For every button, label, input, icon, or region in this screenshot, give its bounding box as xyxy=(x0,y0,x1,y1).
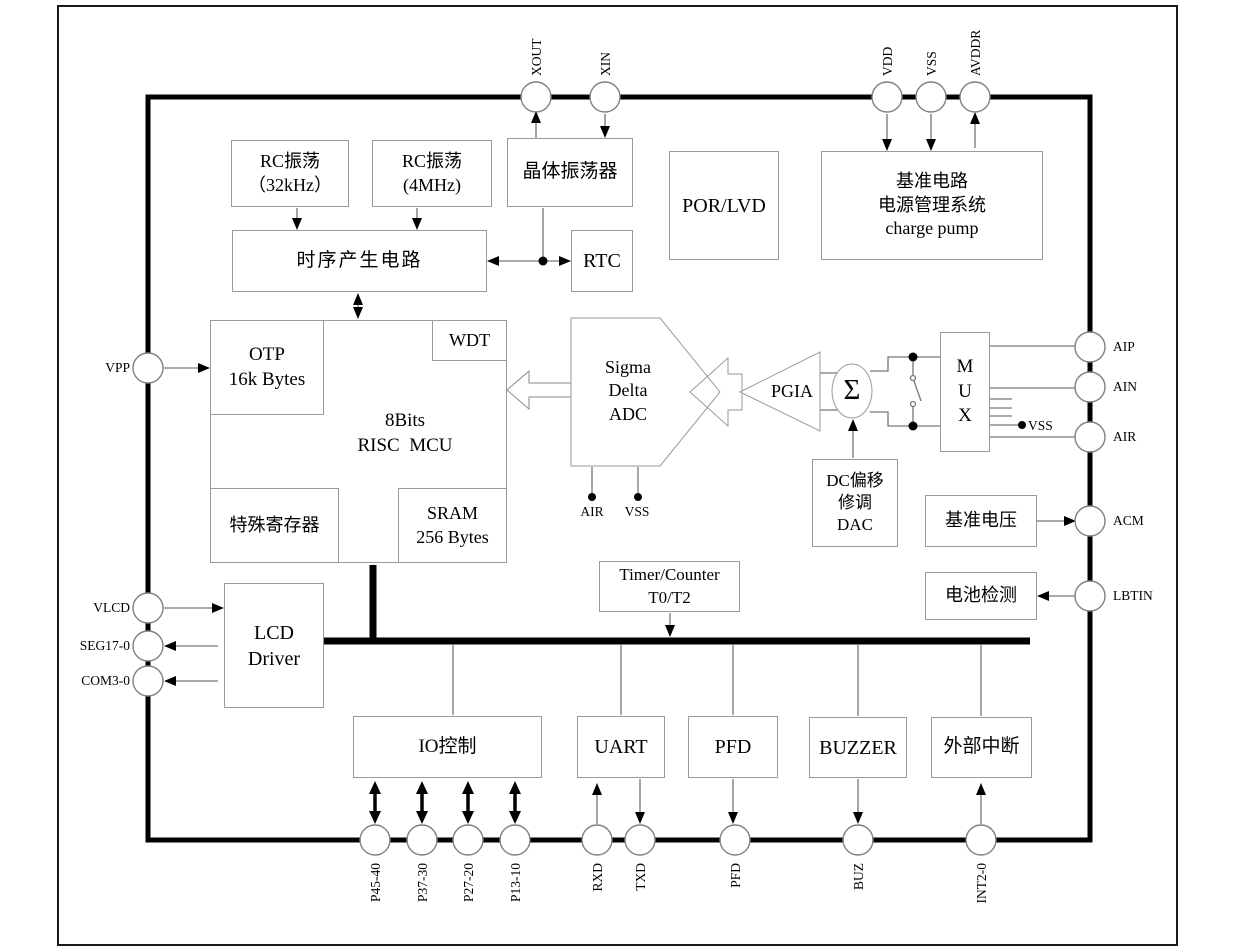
pin-label-p37-30: P37-30 xyxy=(415,863,430,902)
arrowhead-rc32 xyxy=(292,218,302,230)
block-uart: UART xyxy=(577,716,665,778)
switch-contact-bottom xyxy=(911,402,916,407)
pin-label-ain: AIN xyxy=(1113,379,1137,394)
block-label: Timer/Counter xyxy=(619,564,719,586)
block-label: charge pump xyxy=(885,217,978,240)
block-label: 特殊寄存器 xyxy=(230,514,320,537)
arrowhead-seg xyxy=(164,641,176,651)
arrowhead-pfd-down xyxy=(728,812,738,824)
block-label: M xyxy=(957,355,974,380)
block-buzzer: BUZZER xyxy=(809,717,907,778)
block-timer-counter: Timer/Counter T0/T2 xyxy=(599,561,740,612)
block-label: ADC xyxy=(609,403,647,426)
wire-sum-switch-bot xyxy=(870,412,910,426)
pin-ain xyxy=(1075,372,1105,402)
pin-label-p45-40: P45-40 xyxy=(368,863,383,902)
block-pfd: PFD xyxy=(688,716,778,778)
io-port-arrows xyxy=(375,789,515,816)
pin-label-xout: XOUT xyxy=(529,38,544,76)
arrowhead-rc4 xyxy=(412,218,422,230)
block-label: 基准电压 xyxy=(945,509,1017,532)
arrowhead-io2-up xyxy=(416,781,428,794)
pin-p37-30 xyxy=(407,825,437,855)
block-label: UART xyxy=(594,734,647,760)
block-label: Delta xyxy=(609,379,648,402)
arrowhead-com xyxy=(164,676,176,686)
block-por-lvd: POR/LVD xyxy=(669,151,779,260)
block-battery-detect: 电池检测 xyxy=(925,572,1037,620)
analog-switch xyxy=(911,361,922,422)
pin-rxd xyxy=(582,825,612,855)
block-label: LCD xyxy=(254,620,294,646)
block-wdt: WDT xyxy=(432,320,507,361)
pin-buz xyxy=(843,825,873,855)
pin-label-seg17-0: SEG17-0 xyxy=(80,638,130,653)
arrowhead-rtc-right xyxy=(559,256,571,266)
pin-label-pfd: PFD xyxy=(728,863,743,888)
arrowhead-vdd-down xyxy=(882,139,892,151)
block-label: Sigma xyxy=(605,356,651,379)
pin-label-com3-0: COM3-0 xyxy=(81,673,130,688)
mux-vss-label: VSS xyxy=(1028,418,1053,433)
pin-com3-0 xyxy=(133,666,163,696)
pin-int2-0 xyxy=(966,825,996,855)
pin-label-vpp: VPP xyxy=(105,360,130,375)
adc-ground-label-air: AIR xyxy=(580,504,603,519)
pin-p27-20 xyxy=(453,825,483,855)
block-diagram-canvas: XOUT XIN VDD VSS AVDDR VPP VLCD SEG17-0 … xyxy=(0,0,1241,951)
block-sram: SRAM 256 Bytes xyxy=(398,488,507,563)
pin-xout xyxy=(521,82,551,112)
block-label: 256 Bytes xyxy=(416,526,489,549)
pin-pfd xyxy=(720,825,750,855)
pin-aip xyxy=(1075,332,1105,362)
block-dc-offset-dac: DC偏移 修调 DAC xyxy=(812,459,898,547)
block-rc-osc-4m: RC振荡 (4MHz) xyxy=(372,140,492,207)
arrowhead-acm xyxy=(1064,516,1076,526)
pin-label-vlcd: VLCD xyxy=(93,600,130,615)
block-label: X xyxy=(958,404,972,429)
block-label: （32kHz） xyxy=(248,174,332,197)
block-ext-interrupt: 外部中断 xyxy=(931,717,1032,778)
pin-label-int2-0: INT2-0 xyxy=(974,863,989,904)
block-label: RTC xyxy=(583,248,621,274)
arrowhead-avddr-up xyxy=(970,112,980,124)
block-label: PGIA xyxy=(771,380,813,403)
adc-to-mcu-hollow-arrow xyxy=(507,371,571,409)
block-label: WDT xyxy=(449,329,490,352)
adc-ground-label-vss: VSS xyxy=(625,504,650,519)
block-label: IO控制 xyxy=(418,735,476,760)
block-label: POR/LVD xyxy=(682,193,766,219)
arrowhead-io4-down xyxy=(509,811,521,824)
block-label: 基准电路 xyxy=(896,170,968,193)
block-label: 修调 xyxy=(838,492,872,514)
pin-label-rxd: RXD xyxy=(590,863,605,892)
arrowhead-vss-down xyxy=(926,139,936,151)
pin-xin xyxy=(590,82,620,112)
block-label: 时序产生电路 xyxy=(296,249,422,274)
dot-adc-vss xyxy=(634,493,642,501)
pin-label-p27-20: P27-20 xyxy=(461,863,476,902)
block-label: 晶体振荡器 xyxy=(522,160,617,185)
pin-label-aip: AIP xyxy=(1113,339,1135,354)
arrowhead-xin-down xyxy=(600,126,610,138)
block-label: (4MHz) xyxy=(403,174,461,197)
pin-lbtin xyxy=(1075,581,1105,611)
pin-label-avddr: AVDDR xyxy=(968,30,983,76)
wire-sum-switch-top xyxy=(870,357,910,371)
pin-vlcd xyxy=(133,593,163,623)
block-label: 16k Bytes xyxy=(229,368,306,393)
arrowhead-mcu-down xyxy=(353,307,363,319)
pin-vpp xyxy=(133,353,163,383)
arrowhead-xout-up xyxy=(531,111,541,123)
switch-lever xyxy=(914,381,921,401)
block-rtc: RTC xyxy=(571,230,633,292)
pin-label-vdd: VDD xyxy=(880,47,895,76)
pin-label-xin: XIN xyxy=(598,52,613,76)
summing-node-label: Σ xyxy=(832,368,872,414)
block-lcd-driver: LCD Driver xyxy=(224,583,324,708)
pin-label-acm: ACM xyxy=(1113,513,1144,528)
pin-label-lbtin: LBTIN xyxy=(1113,588,1153,603)
arrowhead-vpp xyxy=(198,363,210,373)
pin-p45-40 xyxy=(360,825,390,855)
block-label: DC偏移 xyxy=(826,470,884,492)
adc-label: Sigma Delta ADC xyxy=(578,353,678,429)
block-label: T0/T2 xyxy=(648,587,691,609)
arrowhead-battery xyxy=(1037,591,1049,601)
block-timing-gen: 时序产生电路 xyxy=(232,230,487,292)
pin-air xyxy=(1075,422,1105,452)
block-power-mgmt: 基准电路 电源管理系统 charge pump xyxy=(821,151,1043,260)
pin-acm xyxy=(1075,506,1105,536)
arrowhead-txd-down xyxy=(635,812,645,824)
block-label: 电源管理系统 xyxy=(878,194,986,217)
block-label: RC振荡 xyxy=(260,150,320,173)
pin-p13-10 xyxy=(500,825,530,855)
block-rc-osc-32k: RC振荡 （32kHz） xyxy=(231,140,349,207)
arrowhead-io1-up xyxy=(369,781,381,794)
arrowhead-io3-down xyxy=(462,811,474,824)
block-label: PFD xyxy=(715,734,752,760)
block-mux: M U X xyxy=(940,332,990,452)
pin-txd xyxy=(625,825,655,855)
pin-avddr xyxy=(960,82,990,112)
block-label: 电池检测 xyxy=(945,584,1017,607)
block-label: BUZZER xyxy=(819,735,897,761)
arrowhead-io2-down xyxy=(416,811,428,824)
block-io-control: IO控制 xyxy=(353,716,542,778)
dot-switch-top xyxy=(909,353,918,362)
block-label: RISC MCU xyxy=(357,434,452,459)
pgia-label: PGIA xyxy=(763,381,821,403)
pin-label-buz: BUZ xyxy=(851,863,866,890)
arrowhead-io4-up xyxy=(509,781,521,794)
sigma-symbol: Σ xyxy=(844,372,861,410)
pin-seg17-0 xyxy=(133,631,163,661)
switch-contact-top xyxy=(911,376,916,381)
block-label: Driver xyxy=(248,646,300,672)
block-otp: OTP 16k Bytes xyxy=(210,320,324,415)
pin-label-txd: TXD xyxy=(633,863,648,891)
arrowhead-timing-left xyxy=(487,256,499,266)
arrowhead-timing-up xyxy=(353,293,363,305)
block-label: 8Bits xyxy=(385,409,425,434)
dot-switch-bottom xyxy=(909,422,918,431)
block-crystal-osc: 晶体振荡器 xyxy=(507,138,633,207)
pin-label-air: AIR xyxy=(1113,429,1136,444)
block-label: 外部中断 xyxy=(943,735,1019,760)
arrowhead-io3-up xyxy=(462,781,474,794)
block-label: OTP xyxy=(249,343,285,368)
mcu-label: 8Bits RISC MCU xyxy=(330,407,480,461)
arrowhead-io1-down xyxy=(369,811,381,824)
block-label: DAC xyxy=(837,514,873,536)
dot-adc-air xyxy=(588,493,596,501)
pin-label-p13-10: P13-10 xyxy=(508,863,523,902)
dot-mux-vss xyxy=(1018,421,1026,429)
arrowhead-vlcd xyxy=(212,603,224,613)
pin-label-vss: VSS xyxy=(924,51,939,76)
io-port-arrowheads xyxy=(369,781,521,824)
pin-vdd xyxy=(872,82,902,112)
block-label: RC振荡 xyxy=(402,150,462,173)
pin-vss xyxy=(916,82,946,112)
block-label: SRAM xyxy=(427,502,478,525)
dot-crystal-junction xyxy=(539,257,548,266)
arrowhead-dac-up xyxy=(848,419,858,431)
arrowhead-rxd-up xyxy=(592,783,602,795)
block-label: U xyxy=(958,380,972,405)
arrowhead-timer-bus xyxy=(665,625,675,637)
block-special-regs: 特殊寄存器 xyxy=(210,488,339,563)
arrowhead-buz-down xyxy=(853,812,863,824)
block-vref: 基准电压 xyxy=(925,495,1037,547)
arrowhead-int-up xyxy=(976,783,986,795)
